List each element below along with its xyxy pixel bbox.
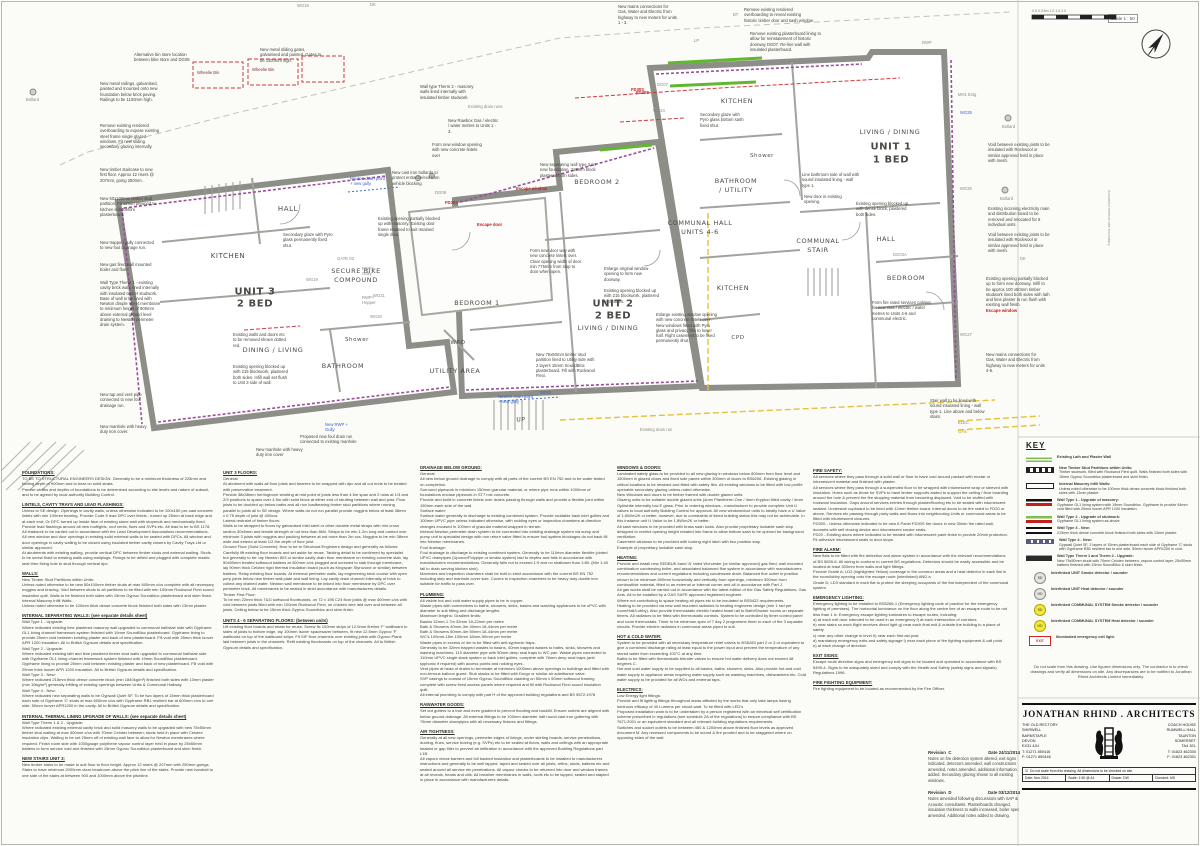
annotation-note: Void between existing joists to be insul… <box>988 232 1050 253</box>
notes-column-fire-safety: FIRE SAFETY:All services where they pass… <box>813 468 1009 696</box>
key-title: KEY <box>1026 441 1194 450</box>
info-field: Scale: 1:50 @ A1 <box>1066 775 1109 781</box>
address-left: THE OLD RECTORY SHIRWELL BARNSTAPLE DEVO… <box>1022 723 1078 760</box>
spec-section: HEATING:Provide and install new SEDBUK b… <box>617 555 807 629</box>
architects-crest-logo <box>1087 723 1131 763</box>
notes-column-floors: UNIT 3 FLOORS:General: At abutment with … <box>223 470 409 655</box>
spec-section: NEW STAIRS UNIT 3:New timber stairs to b… <box>22 756 214 778</box>
spec-section: EMERGENCY LIGHTING:Emergency lighting to… <box>813 595 1009 648</box>
annotation-note: Void between existing joists to be insul… <box>988 142 1050 163</box>
key-swatch-icon <box>1026 539 1054 544</box>
annotation-note: GAS <box>958 429 974 434</box>
annotation-note: Remove existing rendered overboarding to… <box>100 123 160 149</box>
annotation-note: Secondary glaze with Pyro glass bottom s… <box>700 112 748 128</box>
annotation-note: Newton drain point + new gully <box>350 176 386 187</box>
notes-column-drainage-plumbing: DRAINAGE BELOW GROUND:General: All new b… <box>420 465 610 787</box>
spec-section: EXIT SIGNS:Escape route direction signs … <box>813 653 1009 675</box>
scaling-disclaimer: Do not scale from this drawing. Use figu… <box>1030 664 1192 680</box>
annotation-note: Existing opening blocked up with 215 blo… <box>233 364 288 385</box>
key-item: Wall Type 4 - New:Gypwall Quiet SF, 2 la… <box>1026 538 1194 551</box>
annotation-note: Bollard <box>1000 196 1024 201</box>
spec-section: WALLS:New Timber Stud Partitions within … <box>22 571 214 609</box>
key-item: Wall Type 3 - New:215mm thick dense conc… <box>1026 526 1194 535</box>
key-item: Wall Type 2 - Upgrade of studwork:Gypfra… <box>1026 515 1194 524</box>
architect-name: JONATHAN RHIND . ARCHITECTS <box>1022 709 1196 719</box>
annotation-note: Escape window <box>986 308 1026 313</box>
annotation-note: W010 <box>540 390 558 395</box>
annotation-note: New mains connections for Gas, Water and… <box>618 4 678 25</box>
annotation-note: New manhole with heavy duty iron cover <box>256 447 304 458</box>
key-item: SD Interlinked COMMUNAL SYSTEM Smoke det… <box>1026 603 1194 616</box>
annotation-note: Remove existing plasterboard lining to a… <box>750 31 824 52</box>
annotation-note: Escape door <box>477 222 507 227</box>
annotation-note: Remove existing rendered overboarding to… <box>744 7 814 23</box>
annotation-note: Wall type Therm 2 - masonry walls lined … <box>420 84 478 100</box>
annotation-note: Existing walls and doors etc to be remov… <box>233 332 288 348</box>
revision-entry: Revision C Date 24/11/2014 Notes on fire… <box>928 750 1020 783</box>
annotation-note: New door in existing opening. <box>804 194 848 205</box>
spec-section: FOUNDATIONS:TO BE TO STRUCTURAL ENGINEER… <box>22 470 214 497</box>
annotation-note: WG19 <box>306 277 324 282</box>
spec-section: DRAINAGE BELOW GROUND:General: All new b… <box>420 465 610 587</box>
annotation-note: DK <box>1020 256 1032 261</box>
annotation-note: Existing opening blocked up with dense b… <box>856 201 914 217</box>
annotation-note: Bollard <box>26 97 56 102</box>
annotation-note: DG08 <box>435 190 453 195</box>
key-swatch-icon: EXIT <box>1029 636 1051 646</box>
key-item: Wall Type Therm 1 and Therm 2 - Upgrade:… <box>1026 554 1194 567</box>
key-swatch-icon: HD <box>1034 588 1046 600</box>
drawing-sheet: KITCHENHALLUNIT 32 BEDSECURE BIKECOMPOUN… <box>0 0 1200 846</box>
annotation-note: Bollard <box>1002 124 1026 129</box>
key-swatch-icon <box>1026 456 1052 463</box>
annotation-note: GATE 03 <box>337 256 359 261</box>
annotation-note: New 75x50mm timber stud partition lined … <box>536 352 596 378</box>
annotation-note: New metal railings, galvanised, painted … <box>100 81 160 102</box>
key-swatch-icon <box>1026 555 1052 561</box>
annotation-note: FD30S <box>445 200 465 205</box>
annotation-note: WG25 <box>960 110 978 115</box>
annotation-note: WG27 <box>960 332 978 337</box>
spec-section: FIRE SAFETY:All services where they pass… <box>813 468 1009 542</box>
annotation-note: WG20 <box>370 314 388 319</box>
spec-section: AIR TIGHTNESS:Generally at all new openi… <box>420 729 610 782</box>
annotation-note: New Rawbox Gas / electric / water metres… <box>448 118 500 134</box>
annotation-note: Existing incoming electricity main and d… <box>988 206 1050 227</box>
spec-section: FIRE ALARM:New flats to be fitted with f… <box>813 547 1009 590</box>
key-item: HD Interlinked COMMUNAL SYSTEM Heat dete… <box>1026 619 1194 632</box>
spec-section: ELECTRICS:Low Energy light fittings: Pro… <box>617 687 807 740</box>
info-field: Checked: MS <box>1153 775 1195 781</box>
spec-section: PLUMBING:All visible hot and cold water … <box>420 592 610 698</box>
revision-notes: Revision C Date 24/11/2014 Notes on fire… <box>928 750 1020 825</box>
annotation-note: New timber staircase to new first floor.… <box>100 167 160 183</box>
spec-section: LINTELS, CAVITY TRAYS AND LEAD FLASHINGS… <box>22 502 214 566</box>
revision-entry: Revision D Date 03/12/2014 Notes amended… <box>928 790 1020 818</box>
key-item: HD Interlinked UNIT Heat detector / soun… <box>1026 587 1194 600</box>
spec-section: INTERNAL THERMAL LINING UPGRADE OF WALLS… <box>22 714 214 752</box>
annotation-note: MH1 Extg <box>958 92 978 97</box>
annotation-note: New mains connections for Gas, Water and… <box>986 352 1046 373</box>
key-swatch-icon <box>1026 483 1054 489</box>
checkbox-icon: ☑ <box>1025 769 1028 773</box>
spec-section: WINDOWS & DOORS:Laminated safety glass t… <box>617 465 807 550</box>
info-field: Date: Nov 2014 <box>1023 775 1066 781</box>
annotation-note: New RWP + Gully <box>325 422 353 433</box>
key-swatch-icon: SD <box>1034 604 1046 616</box>
annotation-note: RWP+ Gully <box>362 266 382 277</box>
key-item: Wall Type 1 - Upgrade of masonry:Gypfram… <box>1026 498 1194 511</box>
annotation-note: New manhole with heavy duty iron cover. <box>100 424 155 435</box>
annotation-note: WG24 <box>653 108 671 113</box>
key-swatch-icon <box>1026 467 1054 473</box>
annotation-note: ELEC <box>958 420 974 425</box>
annotation-note: New cast iron bollards to protect entran… <box>392 170 446 186</box>
annotation-note: New separating wall type 3 on new founda… <box>540 162 600 178</box>
annotation-note: New metal sliding gates, galvanised and … <box>260 47 326 63</box>
annotation-note: LP <box>694 38 706 43</box>
annotation-note: Form fire rated services cabinet for new… <box>872 300 934 321</box>
annotation-note: Existing opening partially blocked up wi… <box>378 216 442 237</box>
key-swatch-icon: HD <box>1034 620 1046 632</box>
annotation-note: DG03A <box>893 252 913 257</box>
annotation-note: BT <box>733 12 745 17</box>
key-item: New Timber Stud Partitions within Units:… <box>1026 466 1194 479</box>
key-swatch-icon <box>1026 499 1052 506</box>
annotation-note: Existing opening partially blocked up to… <box>986 276 1050 308</box>
annotation-note: Enlarge original window opening to form … <box>604 266 658 282</box>
key-item: SD Interlinked UNIT Smoke detector / sou… <box>1026 571 1194 584</box>
spec-section: RAINWATER GOODS:Set out gutters to a tru… <box>420 702 610 724</box>
annotation-note: New tap and vent pipe connected to new f… <box>100 392 155 408</box>
annotation-note: Proposed new foul drain run connected to… <box>300 434 360 445</box>
annotation-note: RWP <box>922 40 938 45</box>
annotation-note: DG07 <box>657 82 675 87</box>
annotation-note: Enlarge existing window opening with new… <box>656 312 720 344</box>
title-block: JONATHAN RHIND . ARCHITECTS THE OLD RECT… <box>1022 703 1196 790</box>
annotation-note: Existing drain run <box>640 427 680 432</box>
info-field: Drawn: DW <box>1110 775 1153 781</box>
annotation-note: New 50x100mm timber stud partition. Fit … <box>100 196 160 217</box>
annotation-note: Wall Type Therm 1 - existing cavity bric… <box>100 280 164 327</box>
spec-section: INTERNAL SEPARATING WALLS: (see separate… <box>22 613 214 708</box>
annotation-note: Newton drain point + new gully <box>498 394 534 405</box>
key-swatch-icon <box>1026 516 1052 523</box>
drawing-info-fields: Date: Nov 2014Scale: 1:50 @ A1Drawn: DWC… <box>1022 775 1196 782</box>
notes-column-foundations-walls: FOUNDATIONS:TO BE TO STRUCTURAL ENGINEER… <box>22 470 214 783</box>
key-swatch-icon: SD <box>1034 572 1046 584</box>
annotation-note: Form new door way with new concrete lint… <box>530 248 584 274</box>
annotation-note: Stair wall to be lined with sound insula… <box>930 398 988 419</box>
notes-column-windows-heating-electrics: WINDOWS & DOORS:Laminated safety glass t… <box>617 465 807 745</box>
annotation-note: Wheelie Bin <box>252 67 292 72</box>
annotation-note: New trapped gully connected to new foul … <box>100 240 155 251</box>
annotation-note: Line bathroom side of wall with sound in… <box>802 172 862 188</box>
key-item: EXIT Illuminated emergency exit light. <box>1026 635 1194 646</box>
address-right: COACH HOUSE RUMWELL HALL TAUNTON SOMERSE… <box>1140 723 1196 760</box>
spec-section: FIRE FIGHTING EQUIPMENT:Fire fighting eq… <box>813 680 1009 691</box>
key-legend: KEY Existing Lath and Plaster Wall New T… <box>1026 441 1194 649</box>
key-swatch-icon <box>1026 527 1052 534</box>
annotation-note: DK <box>370 2 382 7</box>
do-not-scale-bar: ☑ Do not scale from this drawing. All di… <box>1022 767 1196 775</box>
annotation-note: Escape window <box>516 186 556 191</box>
spec-section: UNITS 4 - 6 SEPARATING FLOORS: (between … <box>223 618 409 650</box>
annotation-note: Form new window opening with new concret… <box>432 142 482 158</box>
key-item: Internal Masonry Infill Walls:Unless not… <box>1026 482 1194 495</box>
annotation-note: RWP+ Hopper <box>362 295 382 306</box>
annotation-note: WG18 <box>297 3 315 8</box>
annotation-note: Secondary glaze with Pyro glass permanen… <box>283 232 333 248</box>
key-item: Existing Lath and Plaster Wall <box>1026 455 1194 463</box>
annotation-note: WG26 <box>960 186 978 191</box>
annotation-note: Existing drain runs <box>468 104 508 109</box>
annotation-note: 0.5 0 0.5m 1.0 1.5 2.0 <box>1032 9 1112 13</box>
spec-section: HOT & COLD WATER:System to be provided w… <box>617 634 807 682</box>
annotation-note: Alternative bin store location between b… <box>134 52 192 63</box>
annotation-note: Existing opening blocked up with 215 blo… <box>604 288 664 304</box>
annotation-note: FD30S <box>636 90 656 95</box>
annotation-note: New gas fired wall mounted boiler and fl… <box>100 262 155 273</box>
annotation-note: Wheelie Bin <box>197 70 237 75</box>
spec-section: UNIT 3 FLOORS:General: At abutment with … <box>223 470 409 613</box>
